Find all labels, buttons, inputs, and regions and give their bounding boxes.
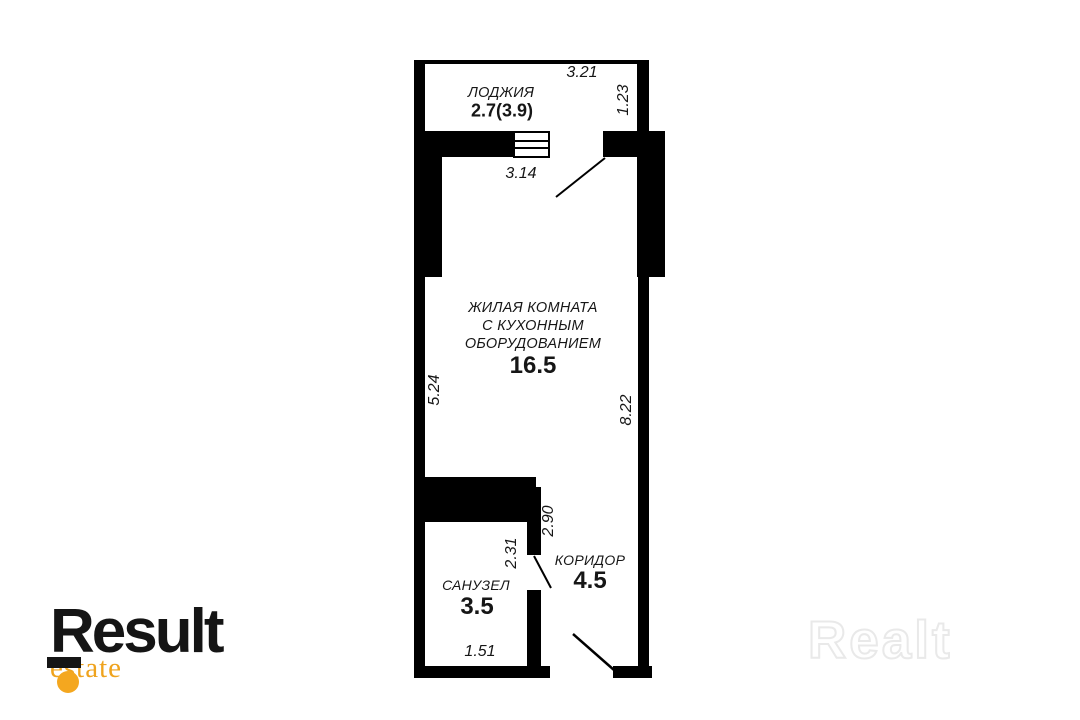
dim-loggia-width: 3.21 [566, 64, 597, 82]
logo-wordmark: Result [50, 596, 250, 660]
wall-loggia-right [637, 60, 649, 132]
wall-right-thin [638, 277, 649, 678]
wall-bottom [414, 666, 550, 678]
corridor-area-label: 4.5 [573, 567, 606, 595]
dim-loggia-depth: 1.23 [615, 84, 633, 115]
wall-loggia-top [414, 60, 649, 64]
wall-right-thick [637, 157, 665, 277]
living-room-area-label: 16.5 [510, 352, 557, 380]
window-frame-line [515, 147, 548, 149]
dim-room-height: 8.22 [618, 394, 636, 425]
living-room-name-line3: ОБОРУДОВАНИЕМ [465, 335, 601, 353]
bathroom-door-swing-icon [534, 556, 551, 588]
wall-left-thick [414, 131, 442, 277]
wall-bathroom-top [414, 477, 536, 522]
living-room-name-line1: ЖИЛАЯ КОМНАТА [465, 299, 601, 317]
living-room-name-line2: С КУХОННЫМ [465, 317, 601, 335]
window-frame-line [515, 140, 548, 142]
dim-bathroom-width: 1.51 [464, 643, 495, 661]
logo-t-bar-icon [47, 657, 81, 668]
dim-corridor-height: 2.90 [540, 505, 558, 536]
entrance-door-swing-icon [573, 634, 614, 670]
wall-balcony-door-pier [603, 131, 665, 157]
balcony-door-swing-icon [556, 158, 605, 197]
wall-partition-upper [527, 487, 541, 555]
dim-room-width: 5.24 [426, 374, 444, 405]
result-estate-logo: Result estate [50, 596, 250, 685]
loggia-name-label: ЛОДЖИЯ [468, 85, 534, 101]
window-icon [513, 131, 550, 158]
corridor-name-label: КОРИДОР [555, 552, 626, 568]
wall-loggia-left [414, 60, 425, 132]
wall-bottom-corner [613, 666, 652, 678]
dim-window-width: 3.14 [505, 165, 536, 183]
bathroom-area-label: 3.5 [460, 593, 493, 621]
bathroom-name-label: САНУЗЕЛ [442, 577, 510, 593]
loggia-area-label: 2.7(3.9) [471, 101, 533, 122]
dim-bathroom-height: 2.31 [503, 537, 521, 568]
living-room-name-label: ЖИЛАЯ КОМНАТА С КУХОННЫМ ОБОРУДОВАНИЕМ [465, 299, 601, 353]
wall-partition-lower [527, 590, 541, 678]
realt-watermark: Realt [808, 610, 953, 671]
logo-dot-icon [57, 671, 79, 693]
